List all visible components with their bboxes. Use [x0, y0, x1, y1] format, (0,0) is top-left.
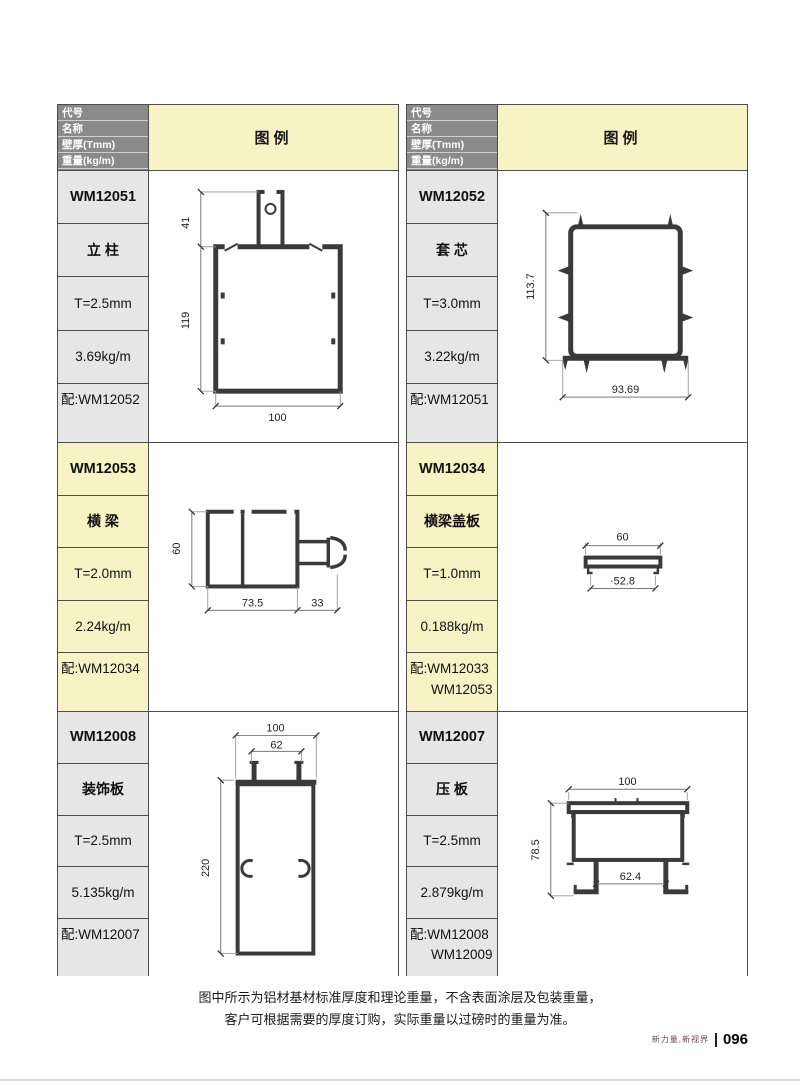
profile-weight: 2.24kg/m	[58, 601, 148, 654]
dim-label: 119	[180, 312, 192, 329]
page-mark: 新力量,新视界 096	[652, 1031, 748, 1048]
profile-weight: 2.879kg/m	[407, 867, 497, 919]
page-number: 096	[723, 1031, 748, 1048]
dim-label: 73.5	[242, 597, 263, 609]
profile-weight: 3.22kg/m	[407, 331, 497, 384]
dim-label: 60	[616, 532, 628, 544]
footer-note: 图中所示为铝材基材标准厚度和理论重量，不含表面涂层及包装重量， 客户可根据需要的…	[0, 987, 800, 1031]
profile-row-wm12053: WM12053 横 梁 T=2.0mm 2.24kg/m 配:WM12034	[58, 443, 398, 712]
profile-row-wm12007: WM12007 压 板 T=2.5mm 2.879kg/m 配:WM12008W…	[407, 712, 747, 976]
dim-label: 78.5	[530, 839, 542, 860]
profile-name: 横 梁	[58, 496, 148, 549]
profile-weight: 5.135kg/m	[58, 867, 148, 919]
profile-thickness: T=3.0mm	[407, 277, 497, 330]
profile-outline	[586, 558, 661, 573]
profile-code: WM12008	[58, 712, 148, 764]
header-row-weight: 重量(kg/m)	[58, 153, 148, 169]
footer-note-line2: 客户可根据需要的厚度订购，实际重量以过磅时的重量为准。	[0, 1009, 800, 1031]
profile-code: WM12052	[407, 171, 497, 224]
profile-match: 配:WM12034	[58, 653, 148, 711]
profile-row-wm12008: WM12008 装饰板 T=2.5mm 5.135kg/m 配:WM12007	[58, 712, 398, 976]
drawing-wm12008: 100 62 220	[149, 712, 398, 976]
brand-tagline: 新力量,新视界	[652, 1034, 709, 1045]
profile-labels: WM12007 压 板 T=2.5mm 2.879kg/m 配:WM12008W…	[407, 712, 498, 976]
drawing-wm12053: 60 73.5 33	[149, 443, 398, 711]
header-row-code: 代号	[407, 105, 497, 121]
profile-thickness: T=2.0mm	[58, 548, 148, 601]
profile-code: WM12007	[407, 712, 497, 764]
profile-drawing-wm12052: 113.7 93.69	[498, 171, 747, 442]
dim-label: 60	[171, 543, 183, 555]
table-header: 代号 名称 壁厚(Tmm) 重量(kg/m) 配套 图例	[407, 105, 747, 171]
header-row-thickness: 壁厚(Tmm)	[58, 137, 148, 153]
profile-code: WM12053	[58, 443, 148, 496]
profile-labels: WM12052 套 芯 T=3.0mm 3.22kg/m 配:WM12051	[407, 171, 498, 442]
profile-outline	[216, 188, 341, 391]
header-label-column: 代号 名称 壁厚(Tmm) 重量(kg/m) 配套	[58, 105, 149, 170]
dim-label: 93.69	[612, 384, 639, 396]
profile-drawing-wm12008: 100 62 220	[149, 712, 398, 976]
profile-row-wm12052: WM12052 套 芯 T=3.0mm 3.22kg/m 配:WM12051	[407, 171, 747, 443]
profile-thickness: T=2.5mm	[58, 816, 148, 868]
dim-label: 113.7	[525, 273, 537, 300]
dim-label: 62.4	[620, 871, 641, 883]
profile-name: 装饰板	[58, 764, 148, 816]
profile-drawing-wm12034: 60 ·52.8	[498, 443, 747, 711]
profile-thickness: T=2.5mm	[407, 816, 497, 868]
profile-name: 横梁盖板	[407, 496, 497, 549]
profile-match: 配:WM12008WM12009	[407, 919, 497, 976]
profile-outline	[558, 214, 693, 373]
header-row-code: 代号	[58, 105, 148, 121]
profile-labels: WM12051 立 柱 T=2.5mm 3.69kg/m 配:WM12052	[58, 171, 149, 442]
legend-header: 图例	[498, 105, 747, 170]
profile-drawing-wm12051: 41 119 100	[149, 171, 398, 442]
page-bottom-edge	[0, 1079, 800, 1081]
profile-match: 配:WM12007	[58, 919, 148, 976]
dim-label: 100	[618, 776, 636, 788]
profile-row-wm12034: WM12034 横梁盖板 T=1.0mm 0.188kg/m 配:WM12033…	[407, 443, 747, 712]
profile-drawing-wm12053: 60 73.5 33	[149, 443, 398, 711]
drawing-wm12034: 60 ·52.8	[498, 443, 747, 711]
profile-name: 套 芯	[407, 224, 497, 277]
profile-weight: 3.69kg/m	[58, 331, 148, 384]
profile-weight: 0.188kg/m	[407, 601, 497, 654]
profile-match: 配:WM12052	[58, 384, 148, 442]
header-row-thickness: 壁厚(Tmm)	[407, 137, 497, 153]
dim-label: 41	[180, 217, 192, 229]
profile-thickness: T=1.0mm	[407, 548, 497, 601]
profile-name: 立 柱	[58, 224, 148, 277]
dim-label: 100	[266, 722, 284, 734]
profile-labels: WM12053 横 梁 T=2.0mm 2.24kg/m 配:WM12034	[58, 443, 149, 711]
profile-outline	[236, 762, 317, 953]
profile-drawing-wm12007: 100 78.5 62.4	[498, 712, 747, 976]
profile-match: 配:WM12051	[407, 384, 497, 442]
profile-labels: WM12034 横梁盖板 T=1.0mm 0.188kg/m 配:WM12033…	[407, 443, 498, 711]
profile-match: 配:WM12033WM12053	[407, 653, 497, 711]
dim-label: 220	[200, 859, 212, 877]
table-header: 代号 名称 壁厚(Tmm) 重量(kg/m) 配套 图例	[58, 105, 398, 171]
header-label-column: 代号 名称 壁厚(Tmm) 重量(kg/m) 配套	[407, 105, 498, 170]
header-row-name: 名称	[407, 121, 497, 137]
profile-code: WM12051	[58, 171, 148, 224]
profile-row-wm12051: WM12051 立 柱 T=2.5mm 3.69kg/m 配:WM12052	[58, 171, 398, 443]
drawing-wm12052: 113.7 93.69	[498, 171, 747, 442]
footer-note-line1: 图中所示为铝材基材标准厚度和理论重量，不含表面涂层及包装重量，	[0, 987, 800, 1009]
profile-code: WM12034	[407, 443, 497, 496]
tagline-separator	[715, 1033, 717, 1047]
dim-label: ·52.8	[610, 575, 635, 587]
spec-table-right: 代号 名称 壁厚(Tmm) 重量(kg/m) 配套 图例 WM12052 套 芯…	[406, 104, 748, 976]
drawing-wm12007: 100 78.5 62.4	[498, 712, 747, 976]
profile-thickness: T=2.5mm	[58, 277, 148, 330]
header-row-weight: 重量(kg/m)	[407, 153, 497, 169]
legend-header: 图例	[149, 105, 398, 170]
header-row-name: 名称	[58, 121, 148, 137]
profile-outline	[208, 508, 345, 587]
dim-label: 62	[270, 739, 282, 751]
dim-label: 100	[268, 412, 286, 424]
drawing-wm12051: 41 119 100	[149, 171, 398, 442]
dim-label: 33	[311, 597, 323, 609]
profile-name: 压 板	[407, 764, 497, 816]
profile-labels: WM12008 装饰板 T=2.5mm 5.135kg/m 配:WM12007	[58, 712, 149, 976]
spec-table-left: 代号 名称 壁厚(Tmm) 重量(kg/m) 配套 图例 WM12051 立 柱…	[57, 104, 399, 976]
